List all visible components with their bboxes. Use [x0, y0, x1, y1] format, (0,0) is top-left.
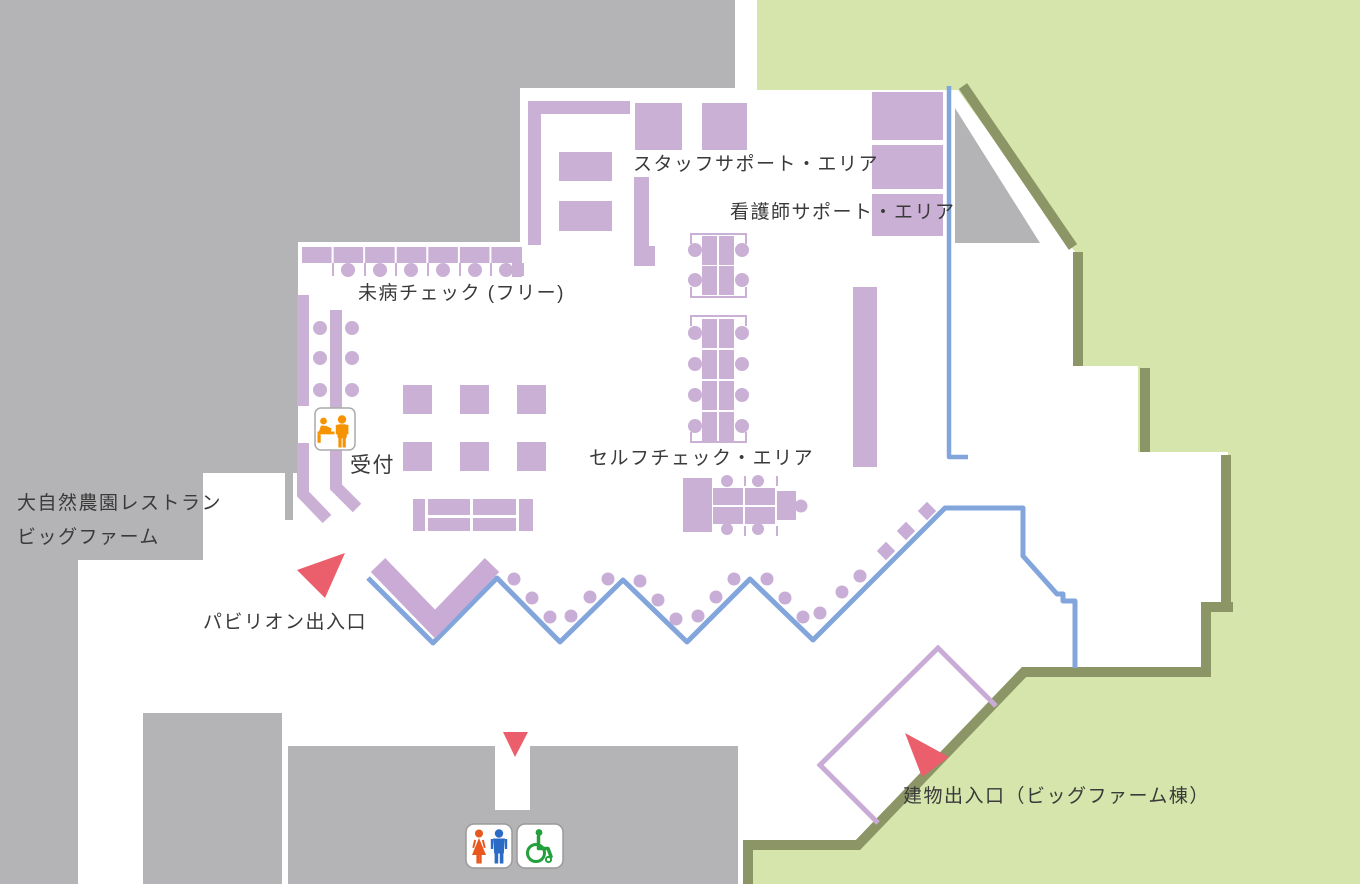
counter-segment — [460, 247, 490, 263]
label-building-exit: 建物出入口（ビッグファーム棟） — [903, 785, 1210, 807]
label-mibyou-check: 未病チェック (フリー) — [358, 282, 565, 304]
label-staff-support: スタッフサポート・エリア — [633, 153, 879, 175]
label-pavilion-exit: パビリオン出入口 — [203, 611, 367, 633]
counter-segment — [302, 247, 332, 263]
floor-map: スタッフサポート・エリア 看護師サポート・エリア 未病チェック (フリー) 受付… — [0, 0, 1360, 884]
counter-segment — [397, 247, 427, 263]
counter-segment — [365, 247, 395, 263]
table — [872, 92, 943, 140]
label-nurse-support: 看護師サポート・エリア — [730, 201, 956, 223]
label-restaurant-line1: 大自然農園レストラン — [17, 492, 222, 514]
table-large — [702, 103, 747, 150]
table — [559, 152, 612, 181]
bench-block — [413, 499, 533, 531]
gray-mass-bottom-left — [143, 713, 282, 884]
wheelchair-accessible-icon — [517, 824, 563, 868]
counter-segment — [334, 247, 364, 263]
partition-bar — [853, 287, 877, 467]
label-self-check: セルフチェック・エリア — [589, 447, 814, 469]
table — [559, 201, 612, 231]
counter-segment — [428, 247, 458, 263]
table — [872, 145, 943, 189]
table-large — [635, 103, 682, 150]
counter-endcap — [512, 247, 522, 277]
reception-desk-icon — [315, 408, 355, 450]
label-reception: 受付 — [350, 454, 395, 477]
restroom-icon — [466, 824, 512, 868]
gray-strip — [285, 473, 293, 520]
label-restaurant-line2: ビッグファーム — [17, 526, 160, 548]
floor-map-canvas: スタッフサポート・エリア 看護師サポート・エリア 未病チェック (フリー) 受付… — [0, 0, 1360, 884]
